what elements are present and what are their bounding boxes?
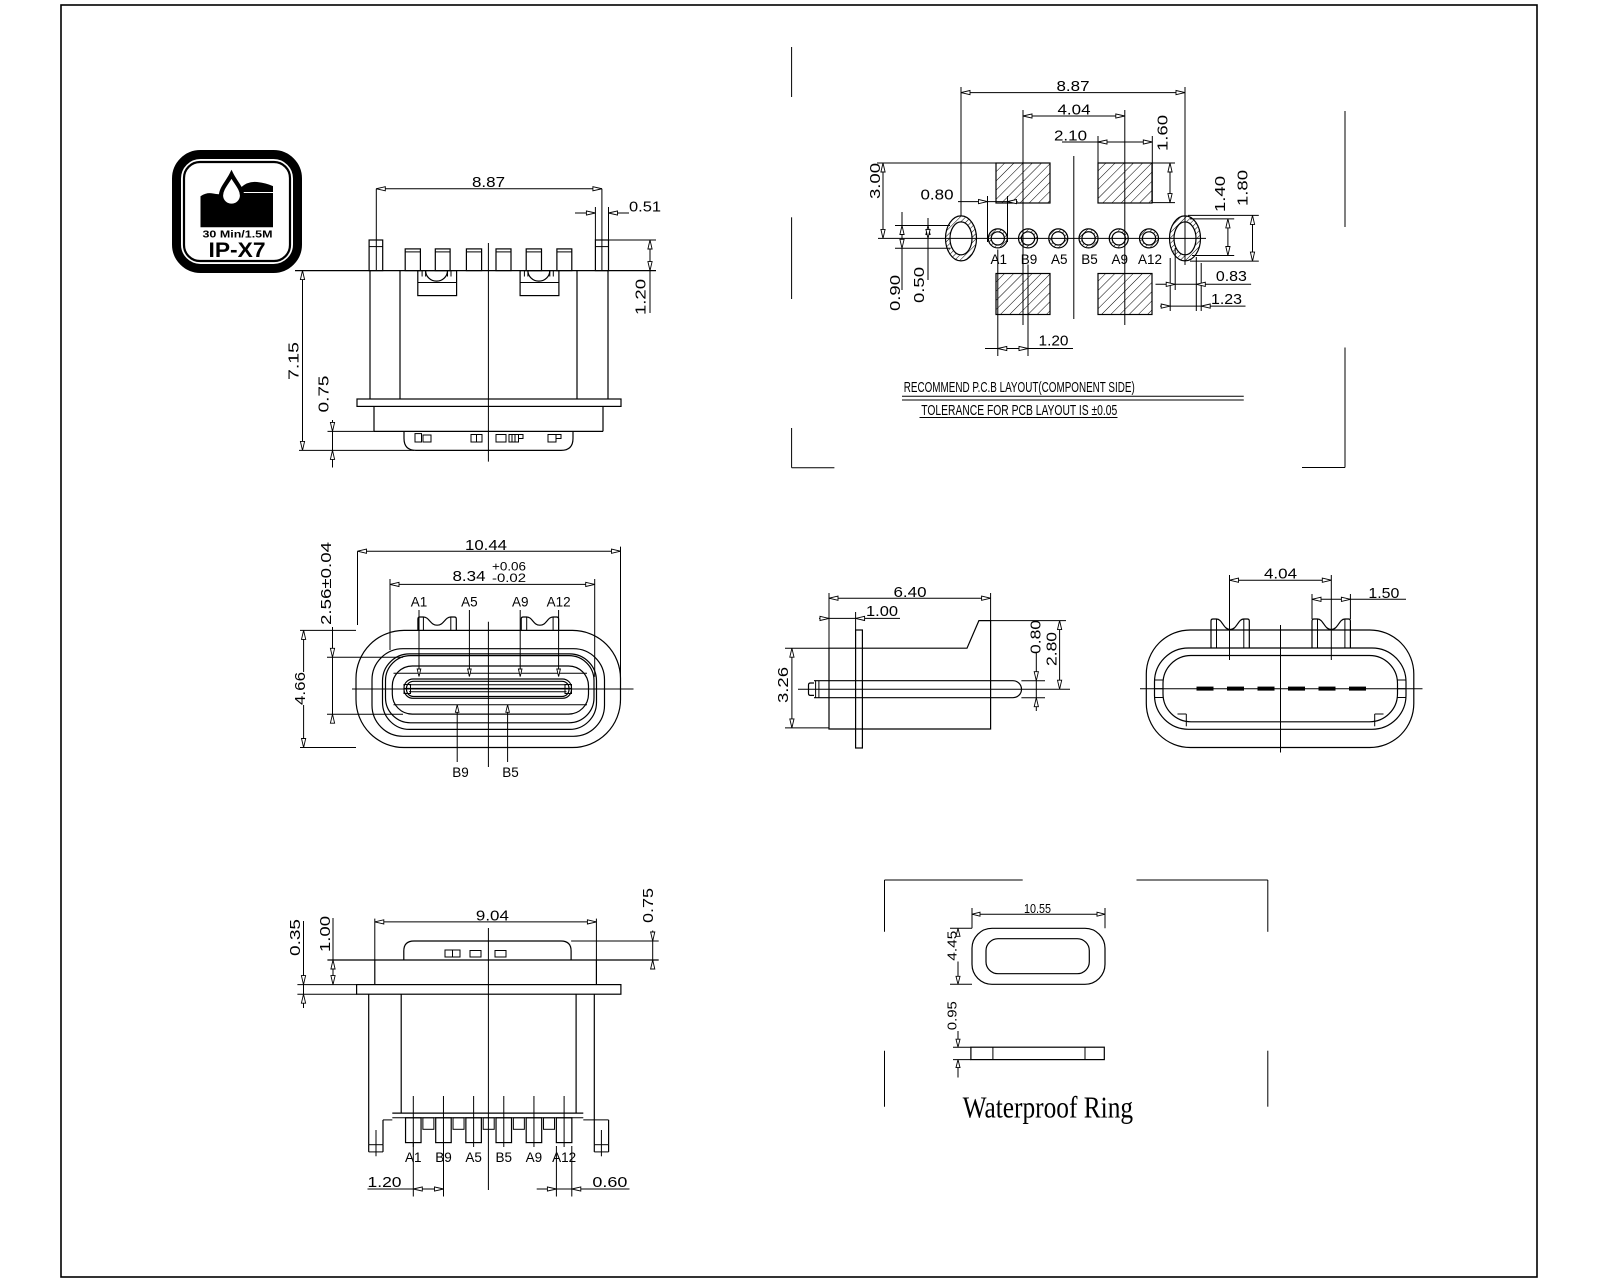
svg-text:0.50: 0.50 — [911, 267, 928, 303]
svg-text:0.75: 0.75 — [640, 888, 657, 923]
svg-text:0.90: 0.90 — [887, 275, 904, 311]
svg-text:6.40: 6.40 — [894, 584, 927, 601]
svg-text:1.40: 1.40 — [1212, 176, 1229, 212]
svg-text:B5: B5 — [502, 765, 519, 780]
svg-text:B9: B9 — [452, 765, 469, 780]
svg-text:8.34: 8.34 — [453, 568, 486, 585]
svg-text:1.00: 1.00 — [866, 603, 898, 620]
svg-text:A9: A9 — [512, 595, 529, 610]
svg-text:0.60: 0.60 — [592, 1174, 627, 1191]
svg-text:A9: A9 — [1112, 252, 1129, 267]
svg-text:2.56±0.04: 2.56±0.04 — [318, 542, 335, 625]
svg-text:3.00: 3.00 — [867, 163, 884, 199]
svg-text:A12: A12 — [552, 1150, 576, 1165]
svg-text:1.20: 1.20 — [632, 279, 649, 315]
svg-text:0.83: 0.83 — [1216, 268, 1247, 285]
svg-text:8.87: 8.87 — [472, 174, 505, 191]
svg-text:IP-X7: IP-X7 — [209, 238, 266, 262]
svg-text:1.60: 1.60 — [1154, 115, 1171, 151]
svg-text:A1: A1 — [411, 595, 428, 610]
svg-text:4.04: 4.04 — [1058, 102, 1091, 119]
svg-text:+0.06: +0.06 — [492, 562, 526, 574]
svg-text:A9: A9 — [526, 1150, 543, 1165]
svg-text:2.80: 2.80 — [1043, 632, 1060, 666]
svg-text:8.87: 8.87 — [1057, 78, 1090, 95]
svg-text:A5: A5 — [465, 1150, 482, 1165]
svg-text:1.80: 1.80 — [1235, 170, 1252, 206]
svg-text:7.15: 7.15 — [285, 342, 302, 380]
svg-text:0.51: 0.51 — [629, 199, 661, 216]
svg-text:Waterproof Ring: Waterproof Ring — [963, 1089, 1134, 1124]
svg-text:B5: B5 — [1081, 252, 1098, 267]
svg-text:10.44: 10.44 — [465, 537, 507, 554]
svg-text:4.04: 4.04 — [1264, 566, 1297, 583]
svg-text:1.50: 1.50 — [1368, 585, 1399, 602]
svg-text:A5: A5 — [1051, 252, 1068, 267]
svg-text:3.26: 3.26 — [775, 667, 792, 703]
svg-text:1.20: 1.20 — [1039, 333, 1069, 350]
svg-text:9.04: 9.04 — [476, 908, 509, 925]
svg-text:4.45: 4.45 — [945, 931, 959, 961]
svg-text:-0.02: -0.02 — [492, 573, 526, 585]
svg-text:0.80: 0.80 — [921, 187, 954, 204]
svg-text:0.75: 0.75 — [315, 376, 332, 413]
svg-text:RECOMMEND P.C.B LAYOUT(COMPONE: RECOMMEND P.C.B LAYOUT(COMPONENT SIDE) — [904, 380, 1135, 396]
svg-text:A1: A1 — [991, 252, 1008, 267]
svg-text:1.00: 1.00 — [317, 916, 334, 952]
svg-text:4.66: 4.66 — [292, 672, 309, 705]
svg-text:A5: A5 — [461, 595, 478, 610]
svg-text:A12: A12 — [1138, 252, 1162, 267]
svg-text:0.80: 0.80 — [1027, 620, 1044, 654]
svg-text:0.35: 0.35 — [287, 919, 304, 956]
svg-text:1.23: 1.23 — [1211, 291, 1242, 308]
svg-text:1.20: 1.20 — [368, 1174, 402, 1191]
svg-text:TOLERANCE FOR PCB LAYOUT IS ±0: TOLERANCE FOR PCB LAYOUT IS ±0.05 — [921, 403, 1117, 419]
svg-text:0.95: 0.95 — [945, 1001, 959, 1030]
svg-text:10.55: 10.55 — [1024, 902, 1051, 916]
svg-text:2.10: 2.10 — [1054, 128, 1087, 145]
svg-text:A12: A12 — [547, 595, 571, 610]
svg-text:B5: B5 — [496, 1150, 513, 1165]
